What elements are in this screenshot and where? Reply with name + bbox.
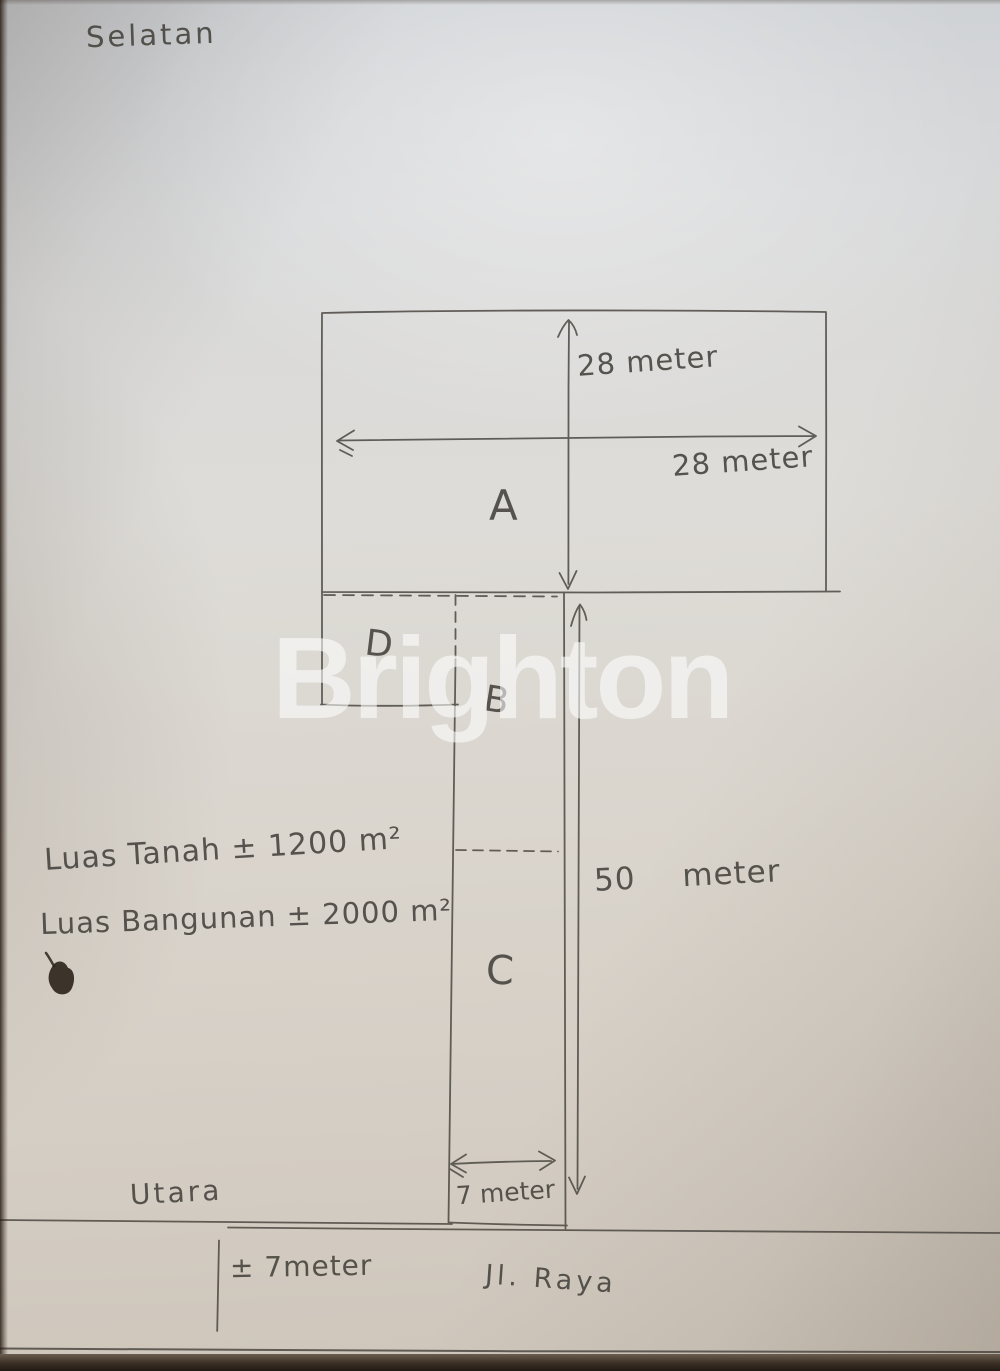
dim-arrow-28-vertical [558, 320, 577, 589]
photo-edge-top [0, 0, 1000, 5]
dimension-label-road-width: ± 7meter [230, 1251, 373, 1283]
direction-label-selatan: Selatan [86, 18, 218, 53]
direction-label-utara: Utara [129, 1176, 223, 1210]
road-line-lower [228, 1228, 1000, 1234]
brighton-watermark: Brighton [272, 620, 731, 736]
paper-photo: Selatan 28 meter 28 meter A D B C 50 met… [0, 0, 1000, 1371]
road-line-upper [0, 1220, 452, 1224]
paper-edge-line [0, 1349, 1000, 1353]
dashed-boundary-under-a [324, 595, 557, 597]
dim-arrow-7-horizontal [450, 1152, 555, 1178]
photo-edge-left [0, 0, 8, 1371]
road-width-tick [217, 1241, 219, 1332]
dashed-divider-b-c [456, 850, 558, 852]
block-c-bottom-edge [449, 1223, 568, 1226]
photo-edge-bottom [0, 1354, 1000, 1371]
section-label-a: A [489, 484, 518, 528]
ink-blot [46, 953, 74, 994]
section-label-c: C [485, 950, 514, 993]
strip-left-edge [449, 659, 456, 1222]
